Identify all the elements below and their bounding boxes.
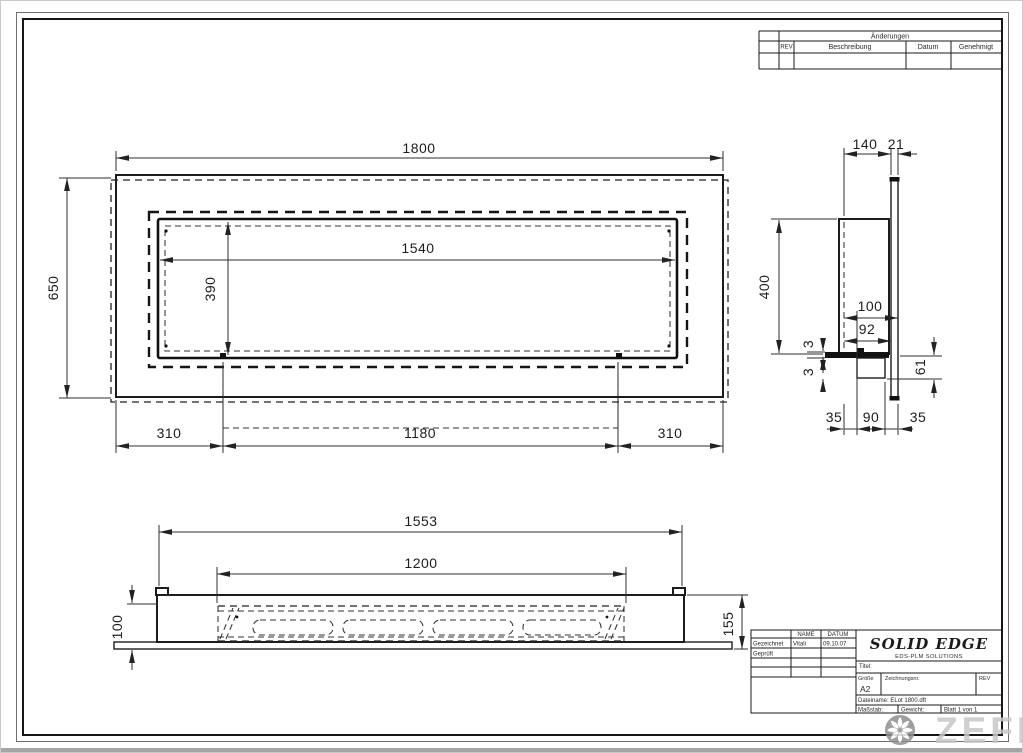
- dim-side-tray-depth: 61: [887, 337, 942, 398]
- svg-text:1540: 1540: [401, 240, 434, 256]
- revision-col-appr: Genehmigt: [959, 44, 993, 51]
- burner-tray: [218, 606, 624, 641]
- dim-bottom-total: 1553: [159, 513, 682, 586]
- drawn-date: 09.10.07: [823, 642, 847, 648]
- revision-col-date: Datum: [918, 44, 939, 51]
- revision-col-rev: REV: [780, 45, 792, 51]
- filename: Dateiname: ELot 1800.dft: [858, 698, 926, 704]
- title-label: Titel:: [859, 664, 872, 670]
- svg-text:100: 100: [109, 615, 125, 640]
- bottom-view: 1553 1200 100 155: [109, 513, 748, 670]
- revision-table: Änderungen REV Beschreibung Datum Genehm…: [759, 31, 1002, 69]
- dim-side-plates: 3 3: [800, 338, 825, 392]
- size-value: A2: [860, 684, 871, 694]
- dim-opening-width: 1540: [160, 240, 675, 260]
- sheet-border: [17, 13, 1009, 742]
- checked-label: Geprüft: [753, 652, 773, 658]
- brand-logo: SOLID EDGE: [870, 635, 988, 653]
- dim-front-bottom: 310 1180 310: [116, 362, 723, 453]
- weight-label: Gewicht:: [901, 708, 925, 714]
- svg-text:35: 35: [910, 409, 927, 425]
- svg-text:3: 3: [800, 368, 816, 376]
- svg-text:3: 3: [800, 340, 816, 348]
- svg-text:61: 61: [912, 359, 928, 376]
- docnum-label: Zeichnungsnr.: [885, 676, 920, 682]
- svg-text:90: 90: [863, 409, 880, 425]
- dim-side-depth: 140 21: [844, 136, 917, 216]
- dim-side-bottom: 35 90 35: [826, 382, 927, 435]
- dim-bottom-right-height: 155: [687, 595, 748, 649]
- dim-bottom-left-height: 100: [109, 585, 158, 670]
- drawn-name: Vitali: [793, 642, 806, 648]
- cad-drawing: Änderungen REV Beschreibung Datum Genehm…: [1, 1, 1023, 753]
- svg-text:100: 100: [858, 298, 883, 314]
- drawn-label: Gezeichnet: [753, 642, 784, 648]
- svg-text:1180: 1180: [404, 425, 436, 441]
- col-date-label: DATUM: [828, 632, 849, 638]
- svg-text:1200: 1200: [404, 555, 437, 571]
- bottom-gray-strip: [1, 748, 1023, 753]
- svg-text:650: 650: [45, 276, 61, 301]
- brand-sub: EDS-PLM SOLUTIONS: [895, 654, 963, 660]
- watermark: ZEFIRE: [885, 710, 1023, 751]
- revision-col-desc: Beschreibung: [829, 44, 872, 51]
- watermark-text: ZEFIRE: [935, 710, 1023, 751]
- svg-text:21: 21: [888, 136, 905, 152]
- side-view: 140 21 400 100 92 3 3: [756, 136, 942, 435]
- scale-label: Maßstab:: [858, 708, 883, 714]
- svg-text:1800: 1800: [402, 140, 435, 156]
- svg-text:310: 310: [658, 425, 683, 441]
- title-block: NAME DATUM Gezeichnet Vitali 09.10.07 Ge…: [751, 630, 1002, 714]
- svg-text:140: 140: [853, 136, 878, 152]
- revision-table-header: Änderungen: [871, 33, 909, 41]
- svg-text:400: 400: [756, 275, 772, 300]
- svg-text:310: 310: [157, 425, 182, 441]
- svg-text:92: 92: [859, 321, 876, 337]
- svg-text:155: 155: [720, 612, 736, 637]
- fan-logo-icon: [885, 715, 915, 745]
- svg-text:35: 35: [826, 409, 843, 425]
- svg-text:1553: 1553: [404, 513, 437, 529]
- drawing-sheet: Änderungen REV Beschreibung Datum Genehm…: [0, 0, 1023, 753]
- rev-label: REV: [979, 676, 991, 682]
- dim-front-width: 1800: [116, 140, 723, 171]
- dim-side-height: 400: [756, 219, 837, 354]
- dim-opening-height: 390: [202, 222, 228, 355]
- col-name-label: NAME: [797, 632, 814, 638]
- front-view: 1800 650 1540 390 310 1180 310: [45, 140, 728, 453]
- size-label: Größe: [858, 676, 874, 682]
- svg-text:390: 390: [202, 277, 218, 302]
- dim-front-height: 650: [45, 178, 111, 398]
